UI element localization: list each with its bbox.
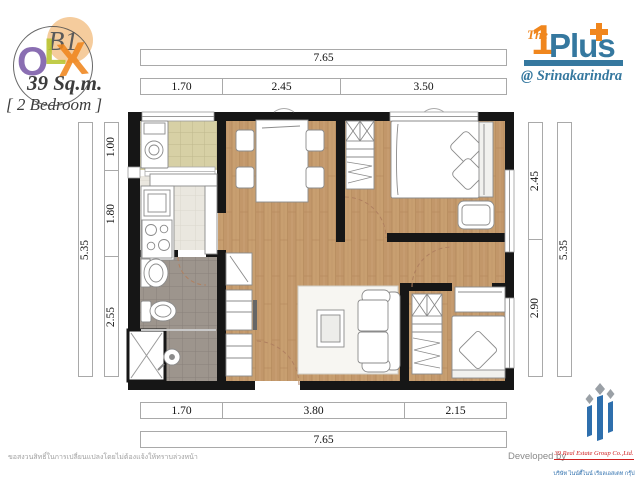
dim-left-segment-2: 1.80 [104,170,119,257]
hall-cabinets [226,253,257,376]
dining-table-icon [256,120,308,202]
developer-company-en: 39 Real Estate Group Co.,Ltd. [554,450,633,460]
floorplan-page: 7.65 1.70 2.45 3.50 5.35 1.00 1.80 2.55 … [0,0,640,480]
desk-icon [455,287,505,312]
window-swing-marks [274,109,444,113]
kitchen-top-counter [150,174,217,186]
chair-icon [306,130,324,151]
living-room [298,286,400,374]
plus-icon [590,23,608,41]
meter-box [128,167,140,178]
chair-icon [306,167,324,188]
stove-icon [142,220,172,258]
chair-icon [236,167,254,188]
developer-logo-icon [581,383,619,443]
dim-right-segment-2: 2.90 [528,239,543,377]
dim-bottom-segment-3: 2.15 [404,402,507,419]
dim-right-segment-1: 2.45 [528,122,543,240]
washbasin-icon [141,259,168,287]
dim-left-segment-3: 2.55 [104,256,119,377]
dim-bottom-segment-1: 1.70 [140,402,223,419]
washing-machine-icon [141,121,168,168]
bedroom-2 [412,287,505,378]
wardrobe-icon [346,121,374,189]
chair-icon [236,130,254,151]
developer-company: 39 Real Estate Group Co.,Ltd. บริษัท ไนน… [548,441,640,480]
developer-company-th: บริษัท ไนน์ตี้ไนน์ เรียลเอสเตท กรุ๊ป จำก… [553,471,634,480]
toilet-icon [141,301,176,322]
disclaimer-text: ขอสงวนสิทธิ์ในการเปลี่ยนแปลงโดยไม่ต้องแจ… [8,452,198,463]
dim-top-segment-3: 3.50 [340,78,507,95]
wardrobe-icon [412,294,442,374]
bed-icon [452,316,505,378]
kitchen-side-counter [205,186,217,254]
olx-letter-x: X [55,35,90,84]
bed-icon [391,121,493,198]
dim-left-segment-1: 1.00 [104,122,119,171]
dim-top-segment-1: 1.70 [140,78,223,95]
dim-right-total: 5.35 [557,122,572,377]
tv-icon [253,300,257,330]
dim-bottom-total: 7.65 [140,431,507,448]
shaft [128,330,165,381]
logo-underline [524,60,623,66]
dim-left-total: 5.35 [78,122,93,377]
dim-top-total: 7.65 [140,49,507,66]
dim-top-segment-2: 2.45 [222,78,341,95]
sofa-icon [358,290,400,372]
coffee-table-icon [317,310,344,347]
dim-bottom-segment-2: 3.80 [222,402,405,419]
bedside-bench-icon [458,201,494,229]
logo-location: @ Srinakarindra [521,68,622,85]
